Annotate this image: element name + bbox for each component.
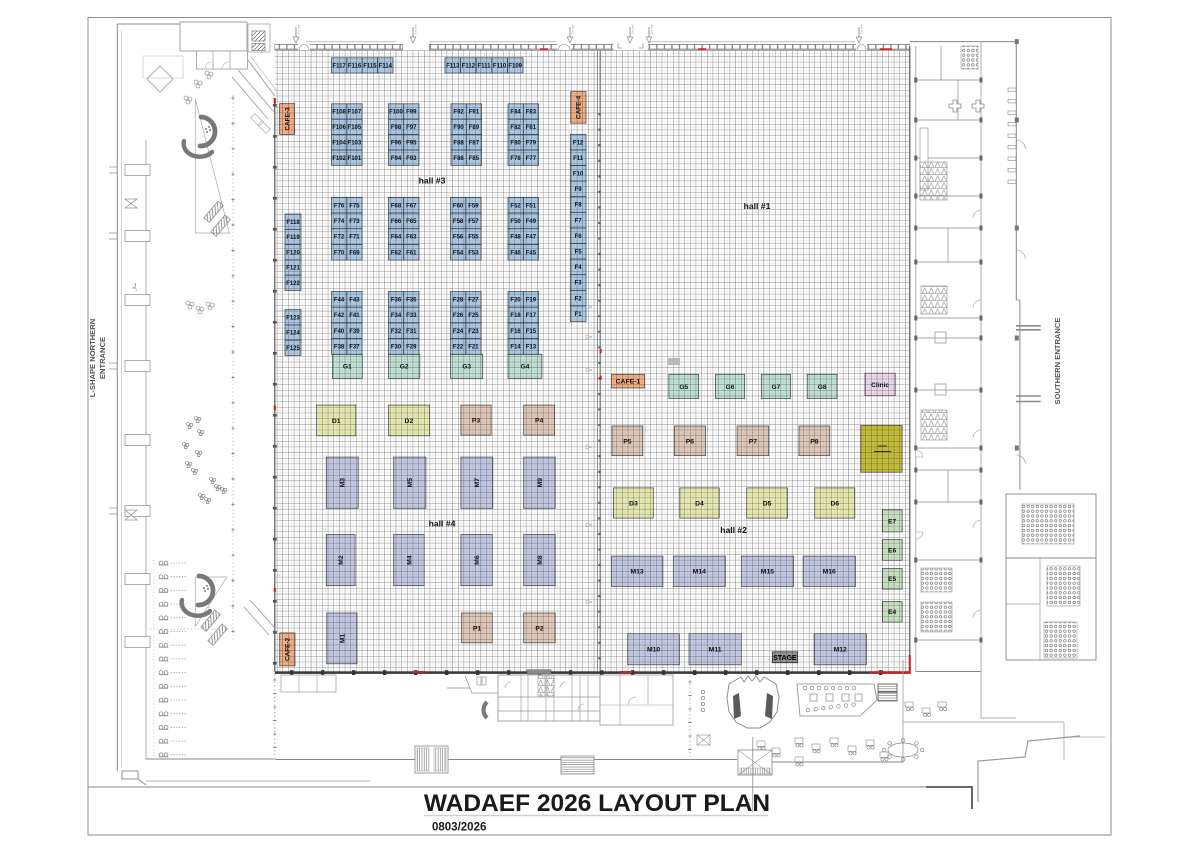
svg-text:F125: F125 xyxy=(286,346,300,352)
svg-text:0803/2026: 0803/2026 xyxy=(432,822,486,834)
svg-text:F41: F41 xyxy=(349,313,360,319)
svg-text:F99: F99 xyxy=(406,110,417,116)
svg-text:G6: G6 xyxy=(726,384,735,391)
svg-text:P1: P1 xyxy=(473,625,482,632)
svg-text:F88: F88 xyxy=(453,141,464,147)
svg-text:P7: P7 xyxy=(749,438,758,445)
svg-text:F76: F76 xyxy=(334,203,345,209)
svg-text:M3: M3 xyxy=(340,478,347,488)
svg-text:WADAEF 2026 LAYOUT PLAN: WADAEF 2026 LAYOUT PLAN xyxy=(424,790,770,817)
svg-text:F54: F54 xyxy=(453,250,464,256)
svg-text:F66: F66 xyxy=(391,219,402,225)
svg-text:Em.exit: Em.exit xyxy=(297,24,301,34)
svg-text:CAFE-4: CAFE-4 xyxy=(576,95,583,119)
svg-text:M12: M12 xyxy=(834,647,847,654)
svg-text:F101: F101 xyxy=(348,156,362,162)
svg-text:F37: F37 xyxy=(349,345,360,351)
svg-text:F46: F46 xyxy=(510,250,521,256)
svg-text:G8: G8 xyxy=(818,384,827,391)
svg-text:F14: F14 xyxy=(510,345,521,351)
svg-text:F8: F8 xyxy=(575,203,583,209)
svg-text:F45: F45 xyxy=(526,250,537,256)
svg-text:F98: F98 xyxy=(391,125,402,131)
svg-text:F73: F73 xyxy=(349,219,360,225)
svg-text:F28: F28 xyxy=(453,298,464,304)
svg-text:F95: F95 xyxy=(406,141,417,147)
svg-text:F78: F78 xyxy=(510,156,521,162)
svg-text:G2: G2 xyxy=(400,364,409,371)
svg-text:F24: F24 xyxy=(453,329,464,335)
svg-text:F9: F9 xyxy=(575,187,583,193)
svg-text:F30: F30 xyxy=(391,345,402,351)
svg-text:F84: F84 xyxy=(510,110,521,116)
svg-text:F122: F122 xyxy=(286,281,300,287)
svg-text:F105: F105 xyxy=(348,125,362,131)
svg-text:E6: E6 xyxy=(888,547,896,554)
svg-text:F107: F107 xyxy=(348,110,362,116)
svg-text:سال: سال xyxy=(132,283,137,292)
svg-text:F110: F110 xyxy=(493,64,507,70)
svg-text:Clinic: Clinic xyxy=(871,382,889,389)
svg-text:F38: F38 xyxy=(334,345,345,351)
svg-text:F119: F119 xyxy=(286,235,300,241)
svg-text:F79: F79 xyxy=(526,141,537,147)
svg-text:F59: F59 xyxy=(468,203,479,209)
svg-text:F70: F70 xyxy=(334,250,345,256)
svg-text:M6: M6 xyxy=(474,555,481,565)
svg-text:D5: D5 xyxy=(763,500,772,507)
svg-text:M15: M15 xyxy=(761,569,774,576)
svg-text:D2: D2 xyxy=(405,418,414,425)
svg-text:F61: F61 xyxy=(406,250,417,256)
svg-text:F102: F102 xyxy=(332,156,346,162)
svg-text:F75: F75 xyxy=(349,203,360,209)
svg-text:STAGE: STAGE xyxy=(773,655,797,662)
svg-text:F81: F81 xyxy=(526,125,537,131)
svg-text:F49: F49 xyxy=(526,219,537,225)
svg-text:F20: F20 xyxy=(510,298,521,304)
svg-text:F72: F72 xyxy=(334,235,345,241)
svg-text:F21: F21 xyxy=(468,345,479,351)
svg-text:F85: F85 xyxy=(469,156,480,162)
svg-text:P8: P8 xyxy=(810,438,819,445)
svg-text:F115: F115 xyxy=(363,64,377,70)
svg-text:F113: F113 xyxy=(446,64,460,70)
svg-text:F13: F13 xyxy=(526,345,537,351)
svg-text:F29: F29 xyxy=(406,345,417,351)
svg-text:F43: F43 xyxy=(349,298,360,304)
svg-text:F96: F96 xyxy=(391,141,402,147)
svg-text:M9: M9 xyxy=(537,478,544,488)
svg-text:F25: F25 xyxy=(468,313,479,319)
svg-text:F93: F93 xyxy=(406,156,417,162)
svg-text:F15: F15 xyxy=(526,329,537,335)
svg-text:M13: M13 xyxy=(630,569,643,576)
svg-text:F51: F51 xyxy=(526,203,537,209)
svg-text:F65: F65 xyxy=(406,219,417,225)
svg-text:F39: F39 xyxy=(349,329,360,335)
svg-text:M16: M16 xyxy=(823,569,836,576)
svg-text:M4: M4 xyxy=(406,555,413,565)
svg-text:F2: F2 xyxy=(575,296,583,302)
svg-text:F44: F44 xyxy=(334,298,345,304)
svg-text:F42: F42 xyxy=(334,313,345,319)
svg-text:D1: D1 xyxy=(332,418,341,425)
svg-text:F97: F97 xyxy=(406,125,417,131)
svg-text:hall #3: hall #3 xyxy=(419,176,446,186)
svg-text:F123: F123 xyxy=(286,315,300,321)
svg-text:F82: F82 xyxy=(510,125,521,131)
svg-text:F68: F68 xyxy=(391,203,402,209)
svg-text:F114: F114 xyxy=(379,64,393,70)
svg-text:D4: D4 xyxy=(695,500,704,507)
svg-text:F109: F109 xyxy=(508,64,522,70)
svg-text:F71: F71 xyxy=(349,235,360,241)
svg-text:F3: F3 xyxy=(575,281,583,287)
svg-text:F74: F74 xyxy=(334,219,345,225)
svg-text:F23: F23 xyxy=(468,329,479,335)
svg-text:hall #1: hall #1 xyxy=(744,201,771,211)
svg-text:F87: F87 xyxy=(469,141,480,147)
svg-text:F117: F117 xyxy=(332,64,346,70)
svg-text:G5: G5 xyxy=(679,384,688,391)
svg-text:F50: F50 xyxy=(510,219,521,225)
svg-text:F108: F108 xyxy=(332,110,346,116)
svg-text:M14: M14 xyxy=(693,569,706,576)
svg-text:E4: E4 xyxy=(888,609,896,616)
svg-text:F32: F32 xyxy=(391,329,402,335)
svg-text:F112: F112 xyxy=(462,64,476,70)
svg-text:G1: G1 xyxy=(343,364,352,371)
svg-text:F16: F16 xyxy=(510,329,521,335)
svg-text:E5: E5 xyxy=(888,576,896,583)
svg-text:F56: F56 xyxy=(453,235,464,241)
svg-text:G3: G3 xyxy=(462,364,471,371)
svg-text:F94: F94 xyxy=(391,156,402,162)
svg-text:F55: F55 xyxy=(468,235,479,241)
svg-text:F4: F4 xyxy=(575,265,583,271)
svg-text:F7: F7 xyxy=(575,218,583,224)
svg-text:F69: F69 xyxy=(349,250,360,256)
svg-text:CAFE-1: CAFE-1 xyxy=(616,379,641,386)
svg-text:F31: F31 xyxy=(406,329,417,335)
svg-text:M1: M1 xyxy=(339,633,346,643)
svg-text:F18: F18 xyxy=(510,313,521,319)
svg-text:F33: F33 xyxy=(406,313,417,319)
svg-text:F103: F103 xyxy=(348,141,362,147)
svg-text:F86: F86 xyxy=(453,156,464,162)
svg-text:M7: M7 xyxy=(474,478,481,488)
svg-text:F10: F10 xyxy=(573,172,584,178)
svg-text:F27: F27 xyxy=(468,298,479,304)
svg-text:F100: F100 xyxy=(389,110,403,116)
svg-text:F58: F58 xyxy=(453,219,464,225)
svg-text:G7: G7 xyxy=(772,384,781,391)
svg-text:F67: F67 xyxy=(406,203,417,209)
svg-text:F92: F92 xyxy=(453,110,464,116)
svg-text:M2: M2 xyxy=(338,555,345,565)
svg-text:P4: P4 xyxy=(535,418,544,425)
svg-text:ENTRANCE: ENTRANCE xyxy=(98,337,107,379)
svg-text:hall #4: hall #4 xyxy=(429,519,456,529)
svg-text:F36: F36 xyxy=(391,298,402,304)
svg-text:M10: M10 xyxy=(647,647,660,654)
svg-text:F47: F47 xyxy=(526,235,537,241)
svg-text:M11: M11 xyxy=(709,647,722,654)
svg-text:F63: F63 xyxy=(406,235,417,241)
svg-text:F106: F106 xyxy=(332,125,346,131)
svg-text:M5: M5 xyxy=(407,478,414,488)
svg-text:F5: F5 xyxy=(575,250,583,256)
svg-text:F111: F111 xyxy=(477,64,491,70)
svg-text:P2: P2 xyxy=(535,625,544,632)
svg-text:F60: F60 xyxy=(453,203,464,209)
svg-text:F22: F22 xyxy=(453,345,464,351)
svg-text:F57: F57 xyxy=(468,219,479,225)
svg-text:F26: F26 xyxy=(453,313,464,319)
svg-text:F89: F89 xyxy=(469,125,480,131)
svg-text:F77: F77 xyxy=(526,156,537,162)
svg-text:F48: F48 xyxy=(510,235,521,241)
svg-text:F64: F64 xyxy=(391,235,402,241)
svg-text:CAFE-3: CAFE-3 xyxy=(285,107,292,131)
svg-text:M8: M8 xyxy=(537,555,544,565)
svg-text:Em.exit: Em.exit xyxy=(414,24,418,34)
svg-text:F90: F90 xyxy=(453,125,464,131)
svg-text:F11: F11 xyxy=(573,156,584,162)
svg-text:F6: F6 xyxy=(575,234,583,240)
svg-text:F83: F83 xyxy=(526,110,537,116)
svg-text:F52: F52 xyxy=(510,203,521,209)
svg-text:F19: F19 xyxy=(526,298,537,304)
svg-text:L-SHAPE NORTHERN: L-SHAPE NORTHERN xyxy=(88,319,97,397)
svg-text:F121: F121 xyxy=(286,266,300,272)
svg-text:P6: P6 xyxy=(686,438,695,445)
svg-text:F120: F120 xyxy=(286,250,300,256)
svg-text:F80: F80 xyxy=(510,141,521,147)
svg-text:F1: F1 xyxy=(575,312,583,318)
svg-text:F91: F91 xyxy=(469,110,480,116)
svg-text:CAFE-2: CAFE-2 xyxy=(285,637,292,661)
svg-text:Em.exit: Em.exit xyxy=(650,24,654,34)
svg-text:F40: F40 xyxy=(334,329,345,335)
svg-text:P3: P3 xyxy=(472,418,481,425)
svg-text:F62: F62 xyxy=(391,250,402,256)
svg-text:F53: F53 xyxy=(468,250,479,256)
svg-text:F12: F12 xyxy=(573,140,584,146)
svg-text:P5: P5 xyxy=(623,438,632,445)
svg-text:Em.exit: Em.exit xyxy=(571,24,575,34)
svg-text:F104: F104 xyxy=(332,141,346,147)
svg-text:SOUTHERN ENTRANCE: SOUTHERN ENTRANCE xyxy=(1053,318,1062,405)
svg-text:Em.exit: Em.exit xyxy=(860,24,864,34)
svg-text:F118: F118 xyxy=(286,220,300,226)
svg-text:G4: G4 xyxy=(521,364,530,371)
svg-text:F124: F124 xyxy=(286,331,300,337)
svg-text:F17: F17 xyxy=(526,313,537,319)
svg-text:F116: F116 xyxy=(348,64,362,70)
svg-text:D3: D3 xyxy=(629,500,638,507)
svg-text:F35: F35 xyxy=(406,298,417,304)
svg-text:hall #2: hall #2 xyxy=(720,525,747,535)
svg-text:F34: F34 xyxy=(391,313,402,319)
svg-text:Em.exit: Em.exit xyxy=(631,24,635,34)
svg-text:D6: D6 xyxy=(830,500,839,507)
svg-text:E7: E7 xyxy=(888,518,896,525)
